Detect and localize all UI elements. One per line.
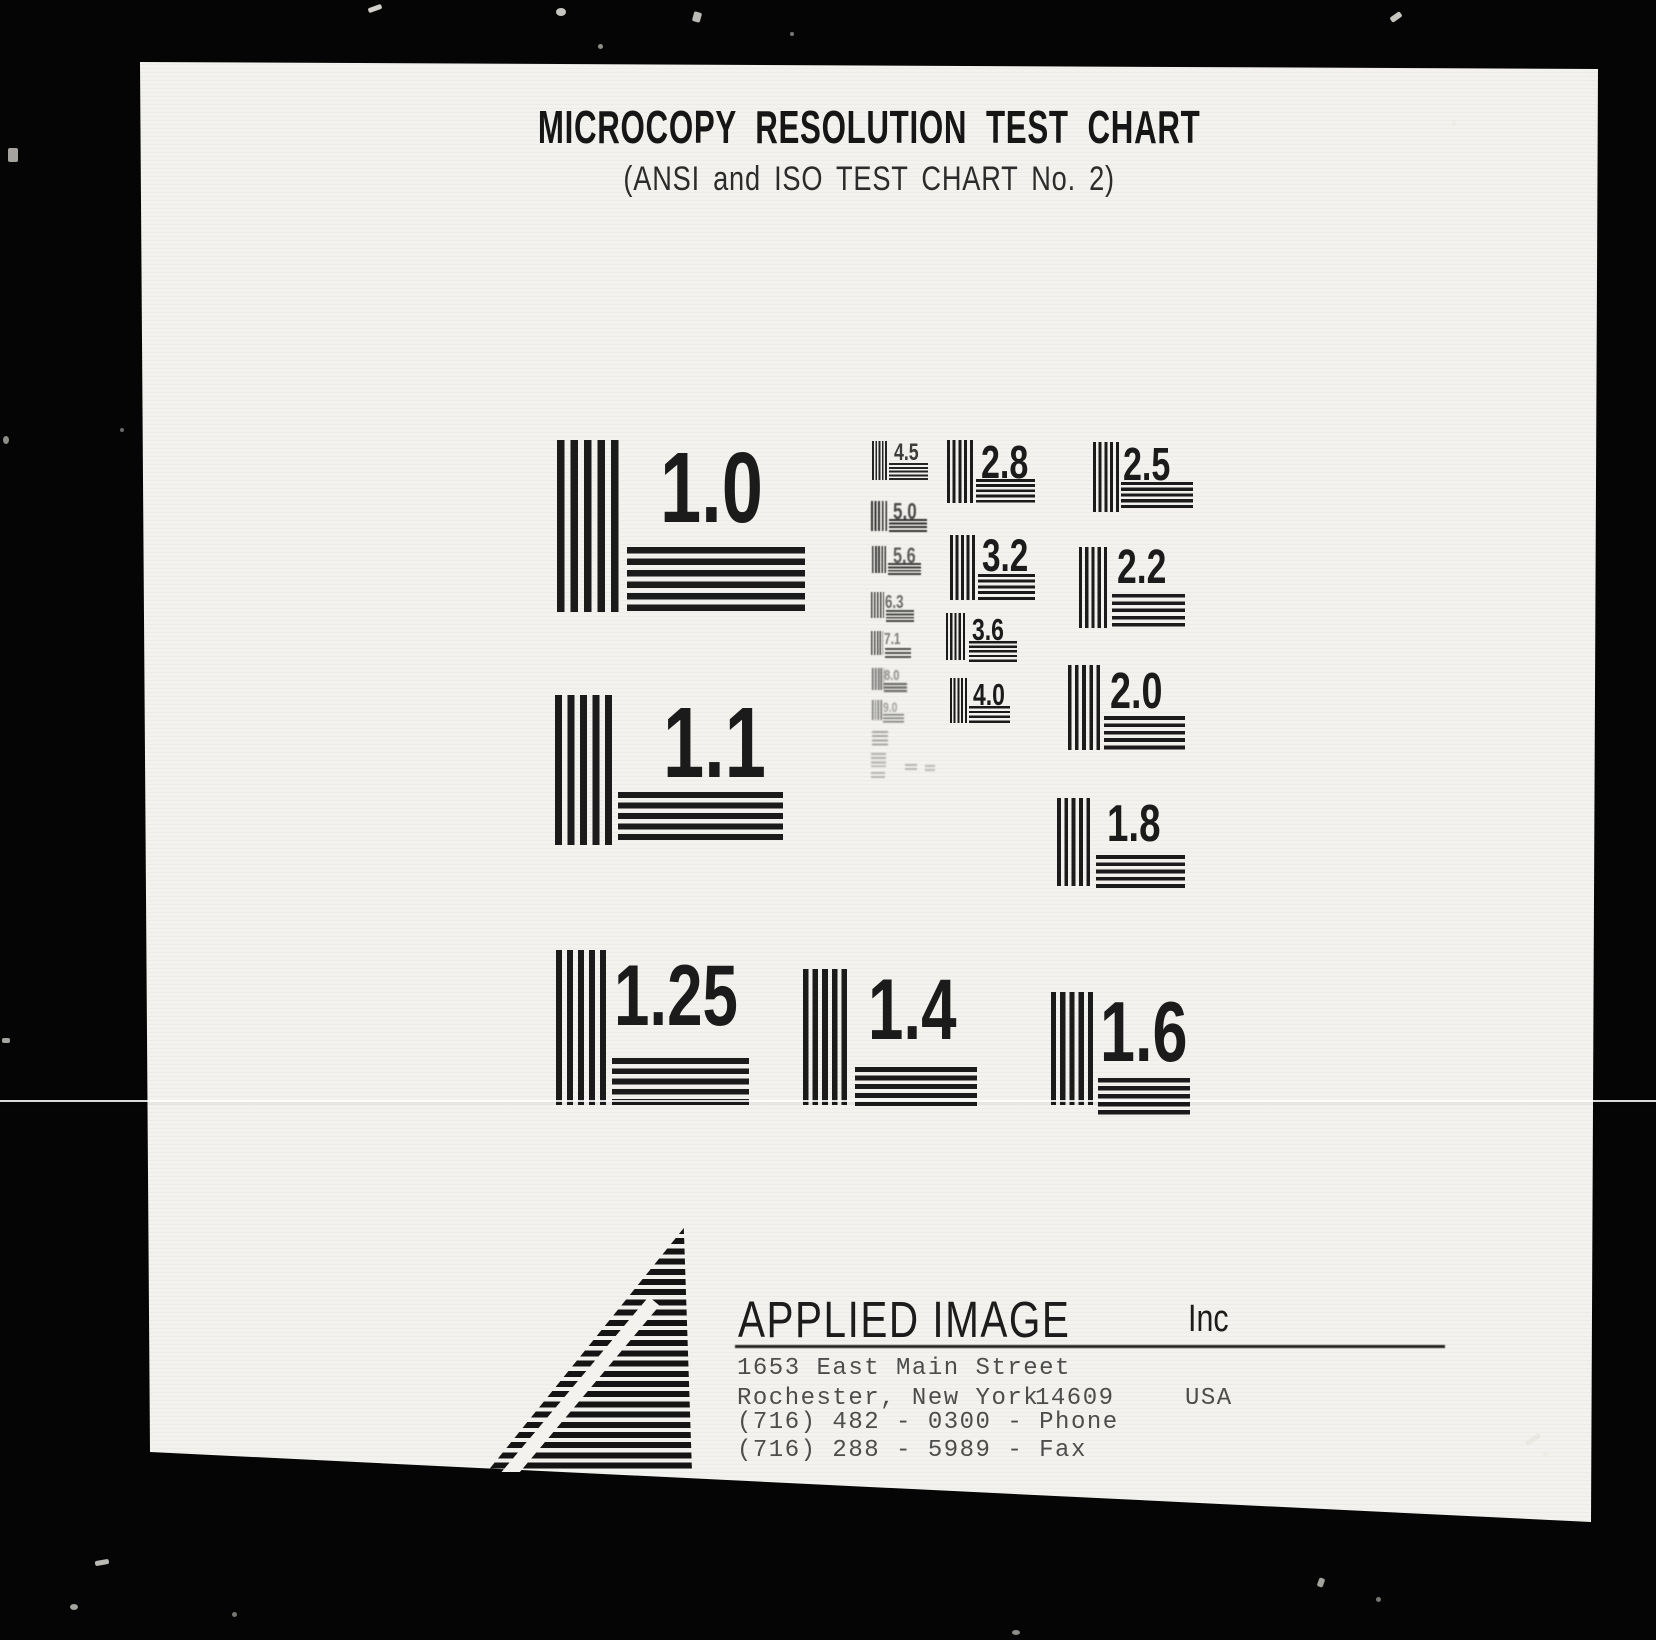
chart-subtitle-text: (ANSI and ISO TEST CHART No. 2) — [623, 160, 1114, 199]
chart-title-text: MICROCOPY RESOLUTION TEST CHART — [538, 100, 1201, 154]
dust-speck — [3, 436, 9, 444]
scratch-line — [0, 1100, 1656, 1102]
chart-title: MICROCOPY RESOLUTION TEST CHART — [140, 100, 1598, 154]
dust-speck — [70, 1604, 78, 1610]
dust-speck — [120, 428, 124, 432]
dust-speck — [1012, 1630, 1020, 1635]
faint-pattern-mark — [925, 765, 935, 773]
address-zip: 14609 — [1035, 1387, 1115, 1411]
scanned-test-chart: MICROCOPY RESOLUTION TEST CHART (ANSI an… — [0, 0, 1656, 1640]
dust-speck — [692, 11, 702, 23]
faint-pattern-mark — [872, 731, 888, 746]
dust-speck — [2, 1038, 10, 1043]
address-street: 1653 East Main Street — [737, 1357, 1071, 1381]
dust-speck — [598, 44, 603, 49]
dust-speck — [1376, 1597, 1381, 1602]
address-country: USA — [1185, 1387, 1233, 1411]
address-city: Rochester, New York — [737, 1387, 1039, 1411]
faint-pattern-mark — [871, 772, 885, 780]
faint-pattern-mark — [871, 753, 886, 767]
dust-speck — [95, 1559, 110, 1566]
dust-speck — [8, 148, 18, 162]
company-name: APPLIED IMAGE — [738, 1294, 1070, 1345]
logo-underline — [735, 1345, 1445, 1348]
dust-speck — [1543, 1452, 1548, 1457]
dust-speck — [1452, 120, 1456, 126]
faint-pattern-mark — [905, 764, 917, 772]
phone-line: (716) 482 - 0300 - Phone — [737, 1411, 1119, 1435]
dust-speck — [1317, 1577, 1326, 1588]
company-suffix: Inc — [1188, 1300, 1229, 1338]
dust-speck — [232, 1612, 237, 1617]
dust-speck — [790, 32, 794, 36]
fax-line: (716) 288 - 5989 - Fax — [737, 1439, 1087, 1463]
chart-subtitle: (ANSI and ISO TEST CHART No. 2) — [140, 160, 1598, 199]
dust-speck — [368, 4, 383, 13]
dust-speck — [556, 8, 566, 16]
dust-speck — [1389, 11, 1402, 23]
